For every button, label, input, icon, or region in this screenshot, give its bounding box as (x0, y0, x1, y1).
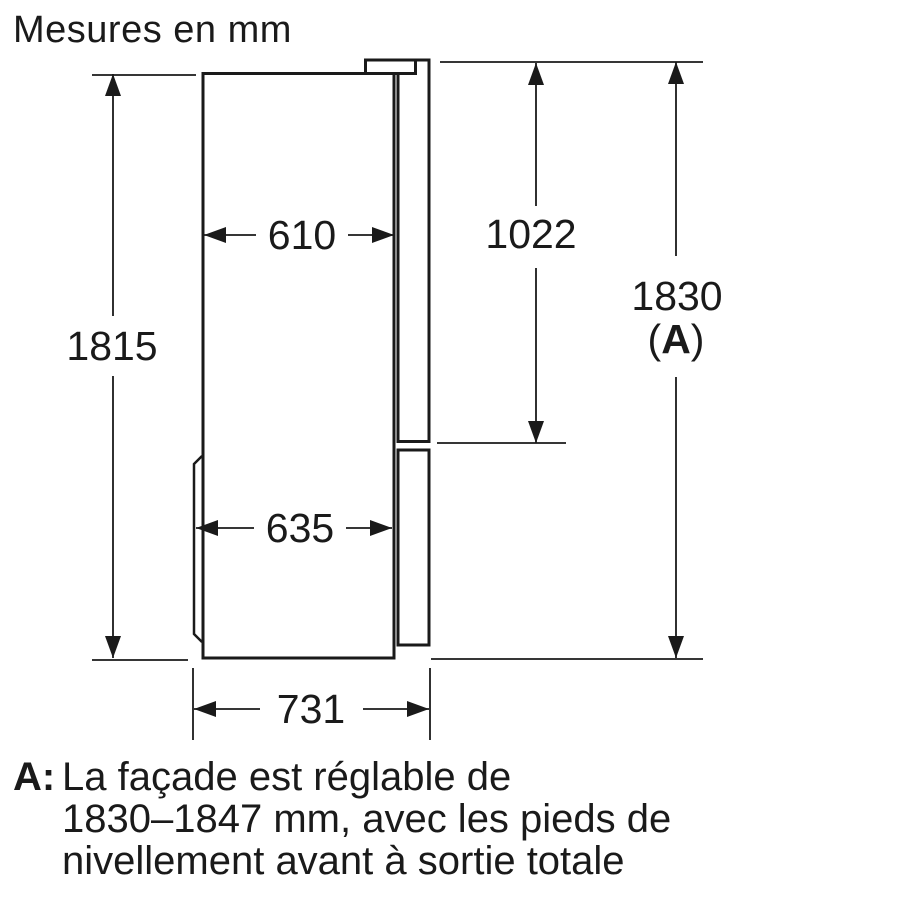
rear-bulge-outline (194, 456, 202, 642)
total-depth-label: 731 (277, 686, 345, 732)
bottom-depth-label: 635 (266, 505, 334, 551)
total-height-label: 1830 (631, 273, 722, 319)
footnote-line-2: 1830–1847 mm, avec les pieds de (62, 798, 671, 840)
body-height-arrow-up (105, 74, 121, 96)
bottom-depth-arrow-right (370, 520, 392, 536)
top-depth-arrow-left (204, 227, 226, 243)
total-depth-arrow-right (407, 701, 429, 717)
total-height-arrow-down (668, 636, 684, 658)
upper-door-height-label: 1022 (485, 211, 576, 257)
diagram-canvas: Mesures en mm 1815 610 1022 (0, 0, 900, 900)
footnote-text: La façade est réglable de 1830–1847 mm, … (62, 756, 671, 882)
body-height-label: 1815 (66, 323, 157, 369)
footnote-ref: A: (13, 756, 62, 798)
total-height-ref-label: (A) (648, 316, 705, 362)
total-height-arrow-up (668, 62, 684, 84)
body-height-arrow-down (105, 636, 121, 658)
top-depth-label: 610 (268, 212, 336, 258)
upper-door-outline (398, 60, 429, 442)
footnote-line-1: La façade est réglable de (62, 756, 671, 798)
upper-door-height-arrow-up (528, 63, 544, 85)
upper-door-height-arrow-down (528, 421, 544, 443)
total-depth-arrow-left (194, 701, 216, 717)
bottom-depth-arrow-left (196, 520, 218, 536)
top-hinge-cover (366, 60, 416, 74)
cabinet-outline (203, 74, 394, 659)
footnote: A: La façade est réglable de 1830–1847 m… (13, 756, 671, 882)
lower-door-outline (398, 450, 429, 645)
footnote-line-3: nivellement avant à sortie totale (62, 840, 671, 882)
top-depth-arrow-right (372, 227, 394, 243)
